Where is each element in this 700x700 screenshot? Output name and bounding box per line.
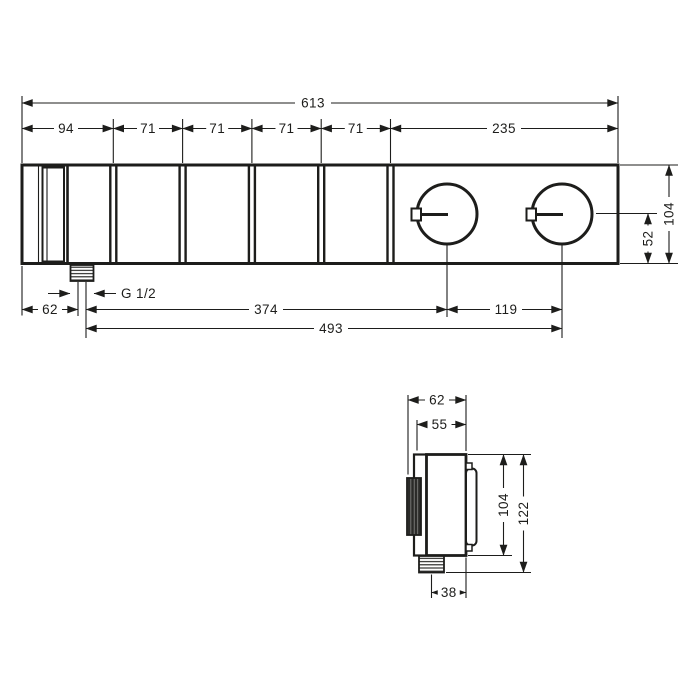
dim-122: 122 [516,455,531,573]
dim-width-total: 613 [22,96,618,111]
dim-bottom-row: 62 374 119 [22,302,562,317]
handle-1-index-tab [412,209,422,221]
dim-label-374: 374 [254,302,278,317]
dim-label-119: 119 [495,302,518,317]
dim-label-613: 613 [301,96,325,111]
side-housing [427,455,467,556]
dim-segments-row: 94 71 71 71 71 235 [22,121,618,136]
dim-depth-overall: 62 [408,393,466,408]
dim-label-71a: 71 [140,121,156,136]
side-backplate-tab-bottom [466,545,472,552]
dim-label-104-side: 104 [496,493,511,517]
front-view: 613 94 71 71 71 71 235 6 [22,96,678,338]
dim-label-38: 38 [441,585,457,600]
side-backplate-tab-top [466,463,472,470]
dim-label-235: 235 [492,121,516,136]
dim-label-62-side: 62 [429,393,445,408]
handle-2-index-tab [527,209,537,221]
dim-depth-plate: 55 [417,417,466,432]
dim-52: 52 [641,214,656,264]
dim-label-71d: 71 [348,121,364,136]
dim-label-62: 62 [42,302,58,317]
dim-label-71c: 71 [279,121,295,136]
control-strip [43,168,65,262]
thread-label: G 1/2 [121,286,156,301]
side-handle-knurled [407,478,421,535]
side-backplate [466,469,477,546]
side-body [407,455,477,573]
dim-493: 493 [86,321,562,336]
thread-callout: G 1/2 [48,286,156,301]
dim-104-side: 104 [496,455,511,556]
side-view: 62 55 104 122 38 [407,393,531,601]
dim-label-52: 52 [641,231,656,247]
technical-drawing: 613 94 71 71 71 71 235 6 [0,0,700,700]
outlet-thread-stub-side [419,556,444,573]
dim-label-122: 122 [516,502,531,526]
dim-label-493: 493 [319,321,343,336]
dim-label-71b: 71 [209,121,225,136]
dim-38: 38 [432,585,467,600]
dim-label-55: 55 [432,417,448,432]
outlet-thread-stub-front [71,265,94,281]
dim-label-104-front: 104 [662,202,677,226]
drawing-canvas: 613 94 71 71 71 71 235 6 [0,0,700,700]
dim-label-94: 94 [58,121,74,136]
dim-104-front: 104 [662,165,677,264]
